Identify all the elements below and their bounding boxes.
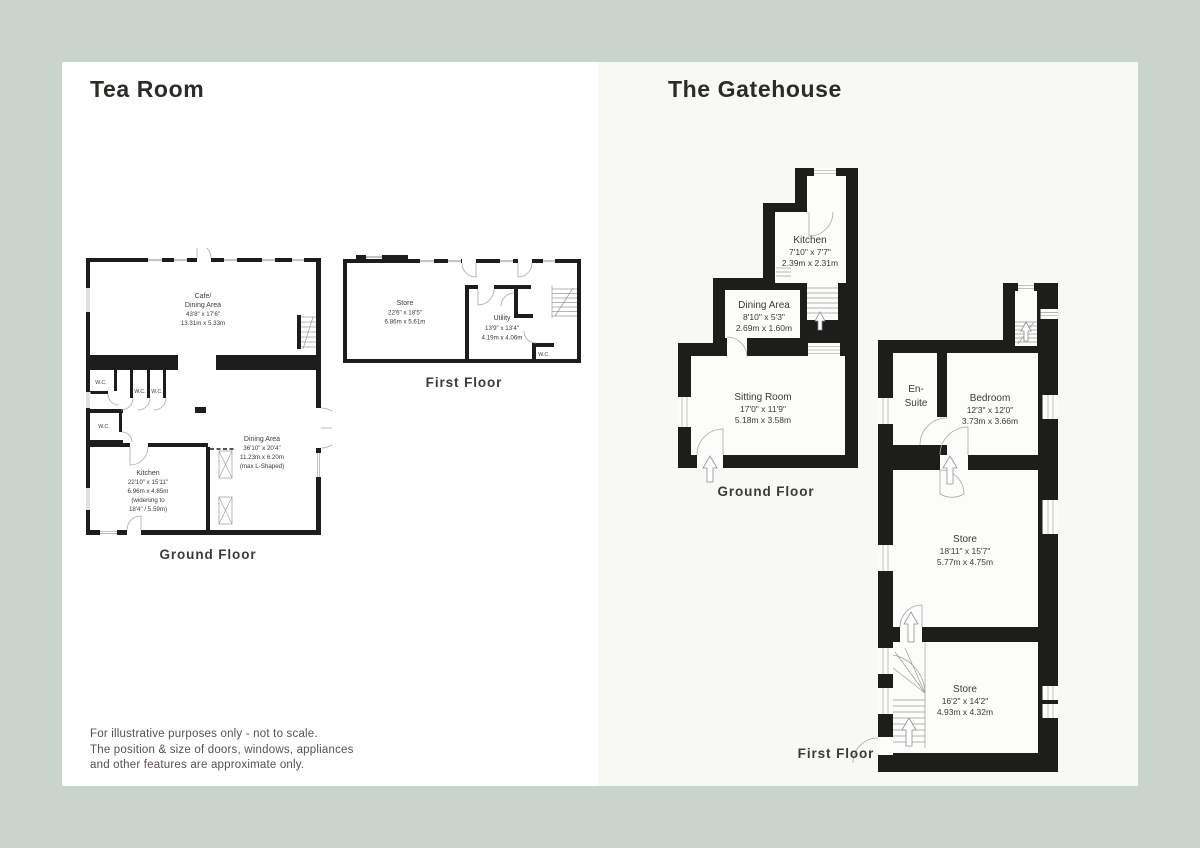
kitchen-note-2: 18'4" / 5.59m) (129, 506, 167, 513)
gh-dining-name: Dining Area (738, 300, 790, 311)
walls (343, 255, 581, 363)
store-metric: 6.86m x 5.61m (385, 319, 426, 326)
disclaimer: For illustrative purposes only - not to … (90, 727, 354, 774)
rooflight-icons (219, 451, 232, 524)
gh-store-low-metric: 4.93m x 4.32m (937, 707, 993, 717)
dining-imperial: 36'10" x 20'4" (243, 445, 280, 452)
gh-ensuite-name-1: En- (908, 384, 924, 395)
kitchen-note-1: (widening to (131, 497, 165, 504)
cafe-name-2: Dining Area (185, 302, 221, 309)
gatehouse-first-floor-label: First Floor (756, 746, 916, 761)
gh-sitting-name: Sitting Room (734, 392, 791, 403)
wc-label-4: W.C. (98, 424, 109, 430)
gh-kitchen-metric: 2.39m x 2.31m (782, 258, 838, 268)
utility-name: Utility (493, 315, 511, 322)
store-imperial: 22'6" x 18'5" (388, 310, 422, 317)
gatehouse-ground-floor-label: Ground Floor (686, 484, 846, 499)
gh-bedroom-imperial: 12'3" x 12'0" (967, 405, 1014, 415)
gh-store-low-name: Store (953, 684, 977, 695)
dining-note: (max L-Shaped) (240, 463, 284, 470)
cafe-name-1: Cafe/ (195, 293, 212, 300)
gh-kitchen-name: Kitchen (793, 235, 826, 246)
gh-store-mid-imperial: 18'11" x 15'7" (940, 546, 991, 556)
gh-sitting-metric: 5.18m x 3.58m (735, 415, 791, 425)
gh-bedroom-metric: 3.73m x 3.66m (962, 416, 1018, 426)
kitchen-imperial: 22'10" x 15'11" (128, 479, 168, 486)
gatehouse-first-floor-plan: En- Suite Bedroom 12'3" x 12'0" 3.73m x … (850, 258, 1062, 778)
disclaimer-line-2: The position & size of doors, windows, a… (90, 743, 354, 759)
wc-label-2: W.C. (134, 389, 145, 395)
room-labels: Cafe/ Dining Area 43'8" x 17'6" 13.31m x… (95, 293, 284, 513)
utility-metric: 4.19m x 4.06m (482, 335, 523, 342)
utility-imperial: 13'9" x 13'4" (485, 325, 519, 332)
kitchen-name: Kitchen (136, 470, 159, 477)
gh-kitchen-imperial: 7'10" x 7'7" (789, 247, 831, 257)
disclaimer-line-1: For illustrative purposes only - not to … (90, 727, 354, 743)
gh-store-mid-metric: 5.77m x 4.75m (937, 557, 993, 567)
tea-room-ground-floor-plan: Cafe/ Dining Area 43'8" x 17'6" 13.31m x… (80, 248, 332, 540)
gh-dining-metric: 2.69m x 1.60m (736, 323, 792, 333)
store-name: Store (397, 300, 414, 307)
dining-metric: 11.23m x 6.20m (240, 454, 284, 461)
gh-sitting-imperial: 17'0" x 11'9" (740, 404, 786, 414)
stairs-icon (301, 317, 316, 349)
gatehouse-title: The Gatehouse (668, 76, 842, 103)
gatehouse-ground-floor-plan: Kitchen 7'10" x 7'7" 2.39m x 2.31m Dinin… (672, 162, 864, 488)
gh-store-mid-name: Store (953, 534, 977, 545)
gh-bedroom-name: Bedroom (970, 393, 1011, 404)
gh-dining-imperial: 8'10" x 5'3" (743, 312, 785, 322)
cafe-imperial: 43'8" x 17'6" (186, 311, 220, 318)
gh-ensuite-name-2: Suite (905, 398, 928, 409)
stairs-icon (552, 285, 577, 318)
tea-ground-floor-label: Ground Floor (128, 547, 288, 562)
dining-name: Dining Area (244, 436, 280, 443)
wc-label-3: W.C. (151, 389, 162, 395)
gh-store-low-imperial: 16'2" x 14'2" (942, 696, 989, 706)
cafe-metric: 13.31m x 5.33m (181, 320, 225, 327)
wc-label-first-floor: W.C. (538, 352, 549, 358)
tea-room-title: Tea Room (90, 76, 204, 103)
disclaimer-line-3: and other features are approximate only. (90, 758, 354, 774)
kitchen-metric: 6.96m x 4.85m (128, 488, 169, 495)
hatch-icon (808, 343, 840, 356)
tea-room-first-floor-plan: Store 22'6" x 18'5" 6.86m x 5.61m Utilit… (338, 248, 586, 368)
wc-label-1: W.C. (95, 380, 106, 386)
tea-first-floor-label: First Floor (384, 375, 544, 390)
